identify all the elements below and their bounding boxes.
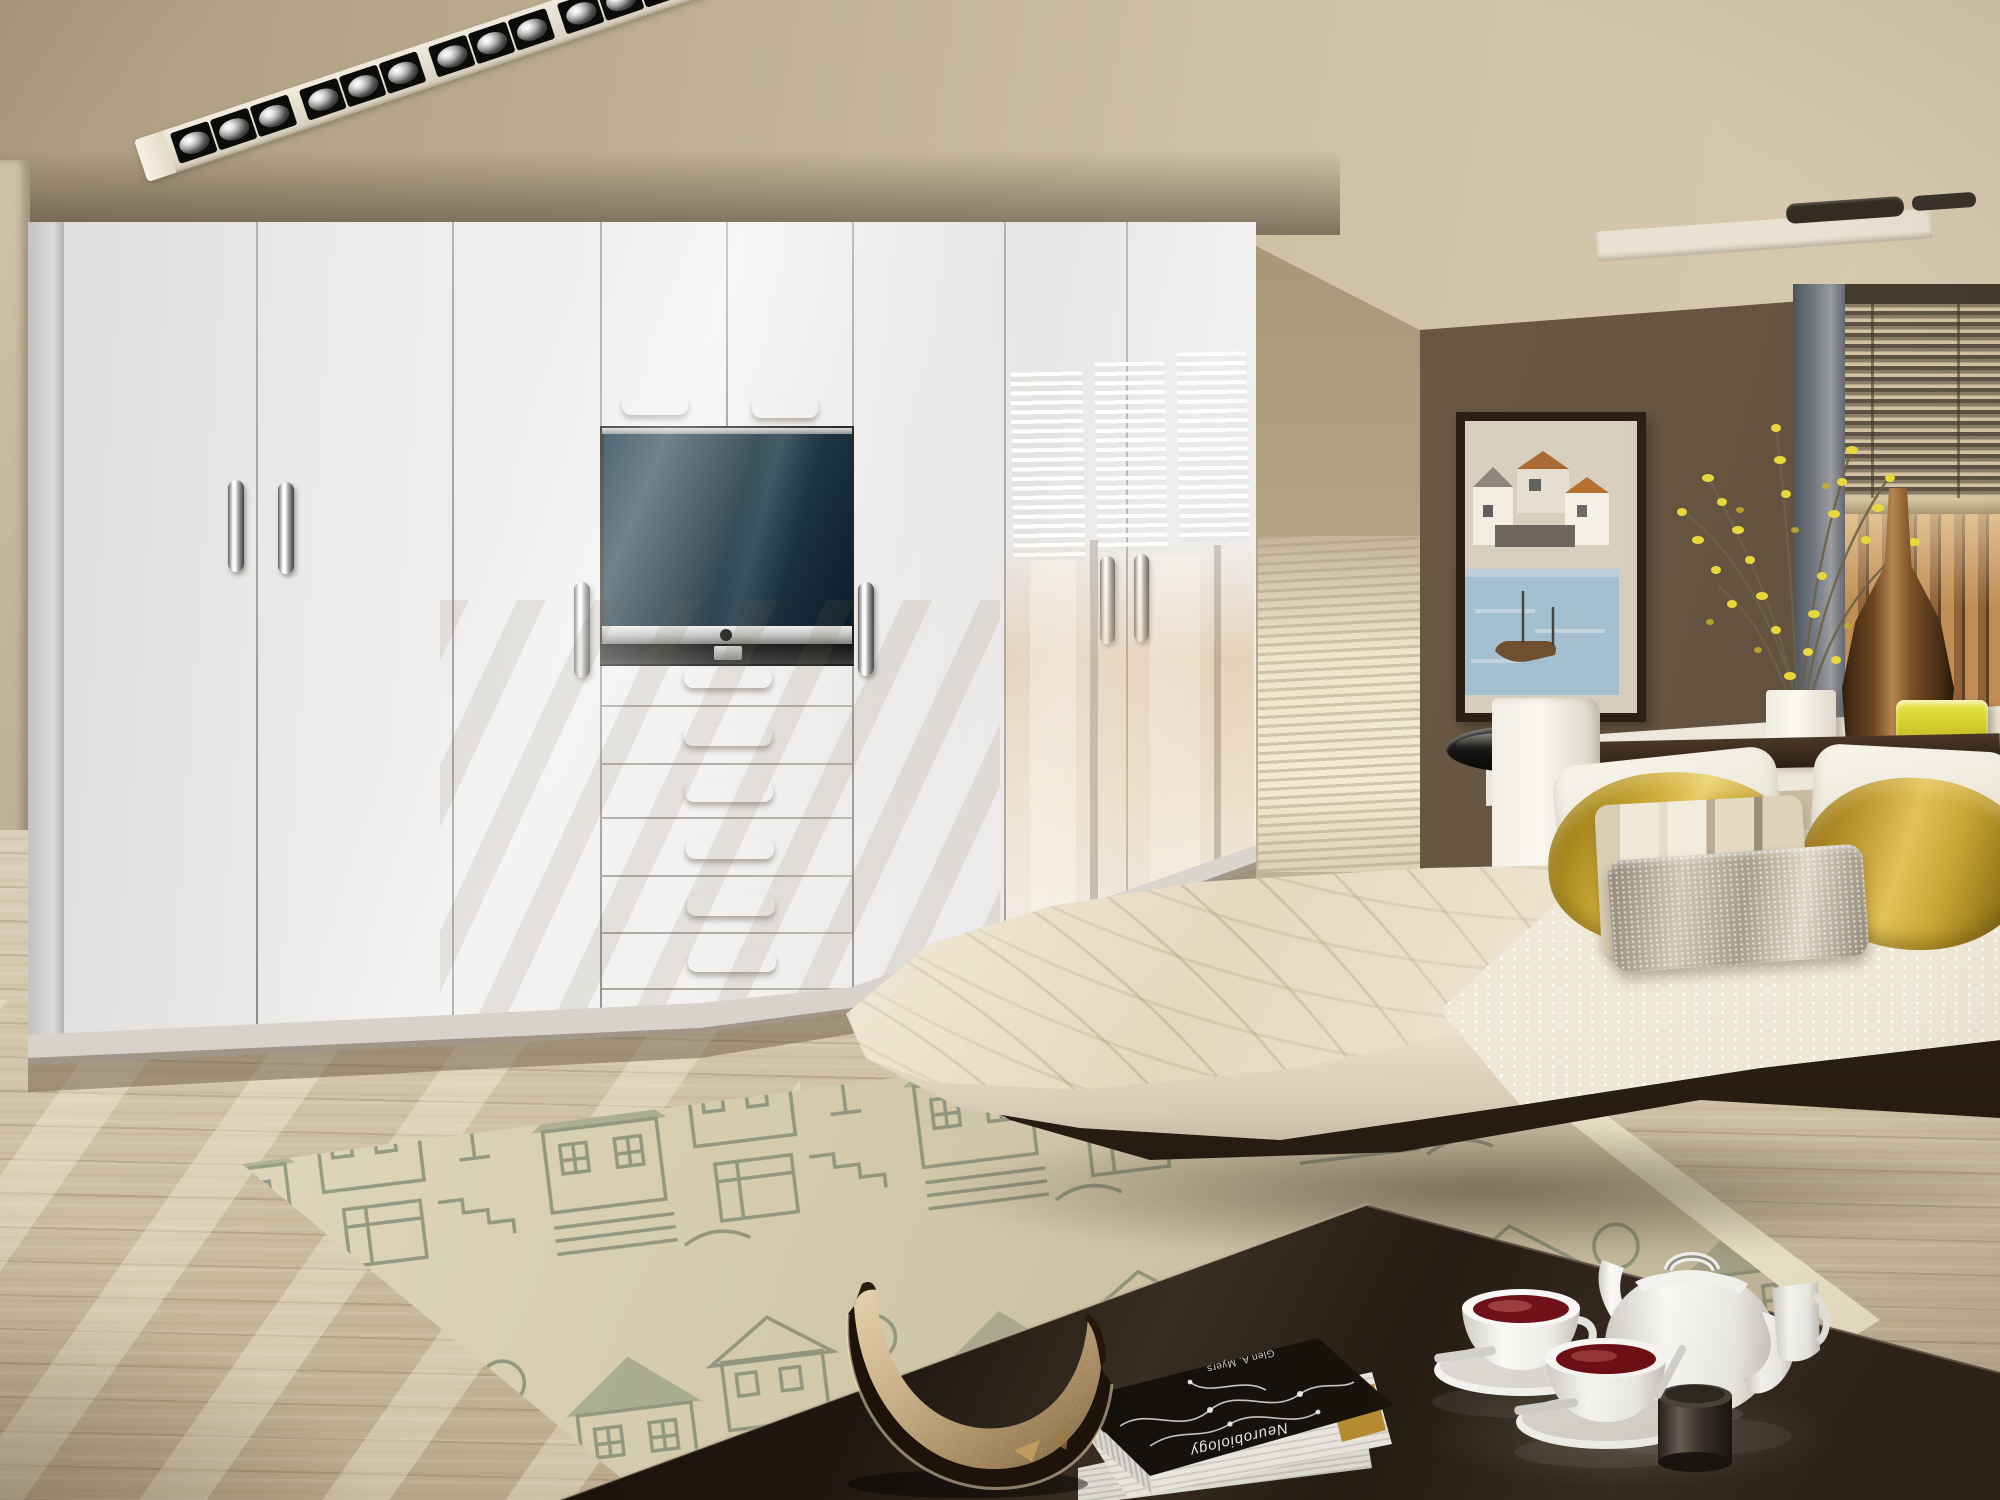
bedroom-photo: Neurobiology Glen A. Myers [0,0,2000,1500]
metal-bowl-sculpture [818,1252,1120,1500]
